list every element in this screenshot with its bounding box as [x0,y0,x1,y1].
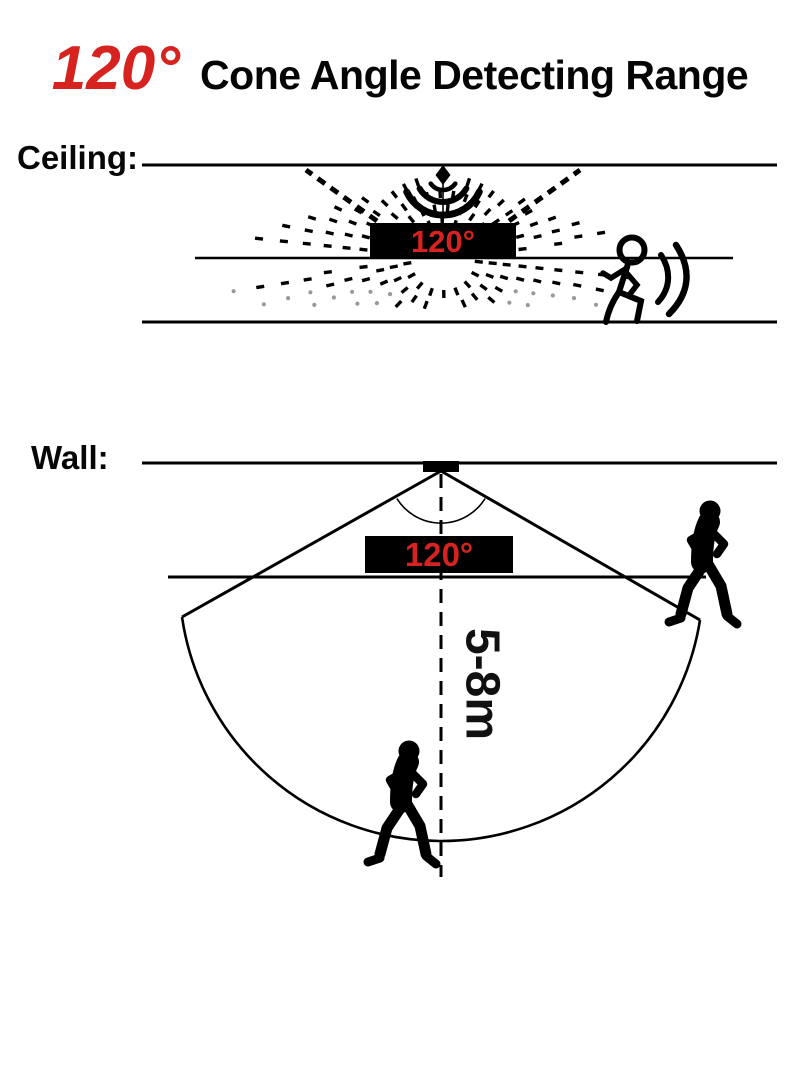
diagram-canvas: 120° 120° [0,0,800,1091]
cone-edge-right-dashed [509,170,580,221]
runner-silhouette-right [669,501,737,625]
wall-diagram: 120° 5-8m [142,461,777,877]
wall-sensor-icon [423,461,459,472]
cone-edge-left-dashed [306,170,377,221]
motion-wave-inner [658,255,668,302]
ceiling-angle-label: 120° [411,224,475,259]
sensor-diamond-icon [436,165,451,185]
motion-wave-outer [669,245,686,314]
stick-figure-back-leg [606,292,619,322]
infographic-page: 120° Cone Angle Detecting Range Ceiling:… [0,0,800,1091]
ceiling-sensor-icon [407,165,480,222]
detection-range-label: 5-8m [455,628,508,740]
stick-figure-back-arm [625,271,637,294]
runner-silhouette-bottom [368,741,436,865]
wall-angle-label: 120° [405,536,473,573]
stick-figure-front-leg [619,292,641,321]
ceiling-diagram: 120° [142,165,777,322]
running-person-icon [603,238,686,323]
